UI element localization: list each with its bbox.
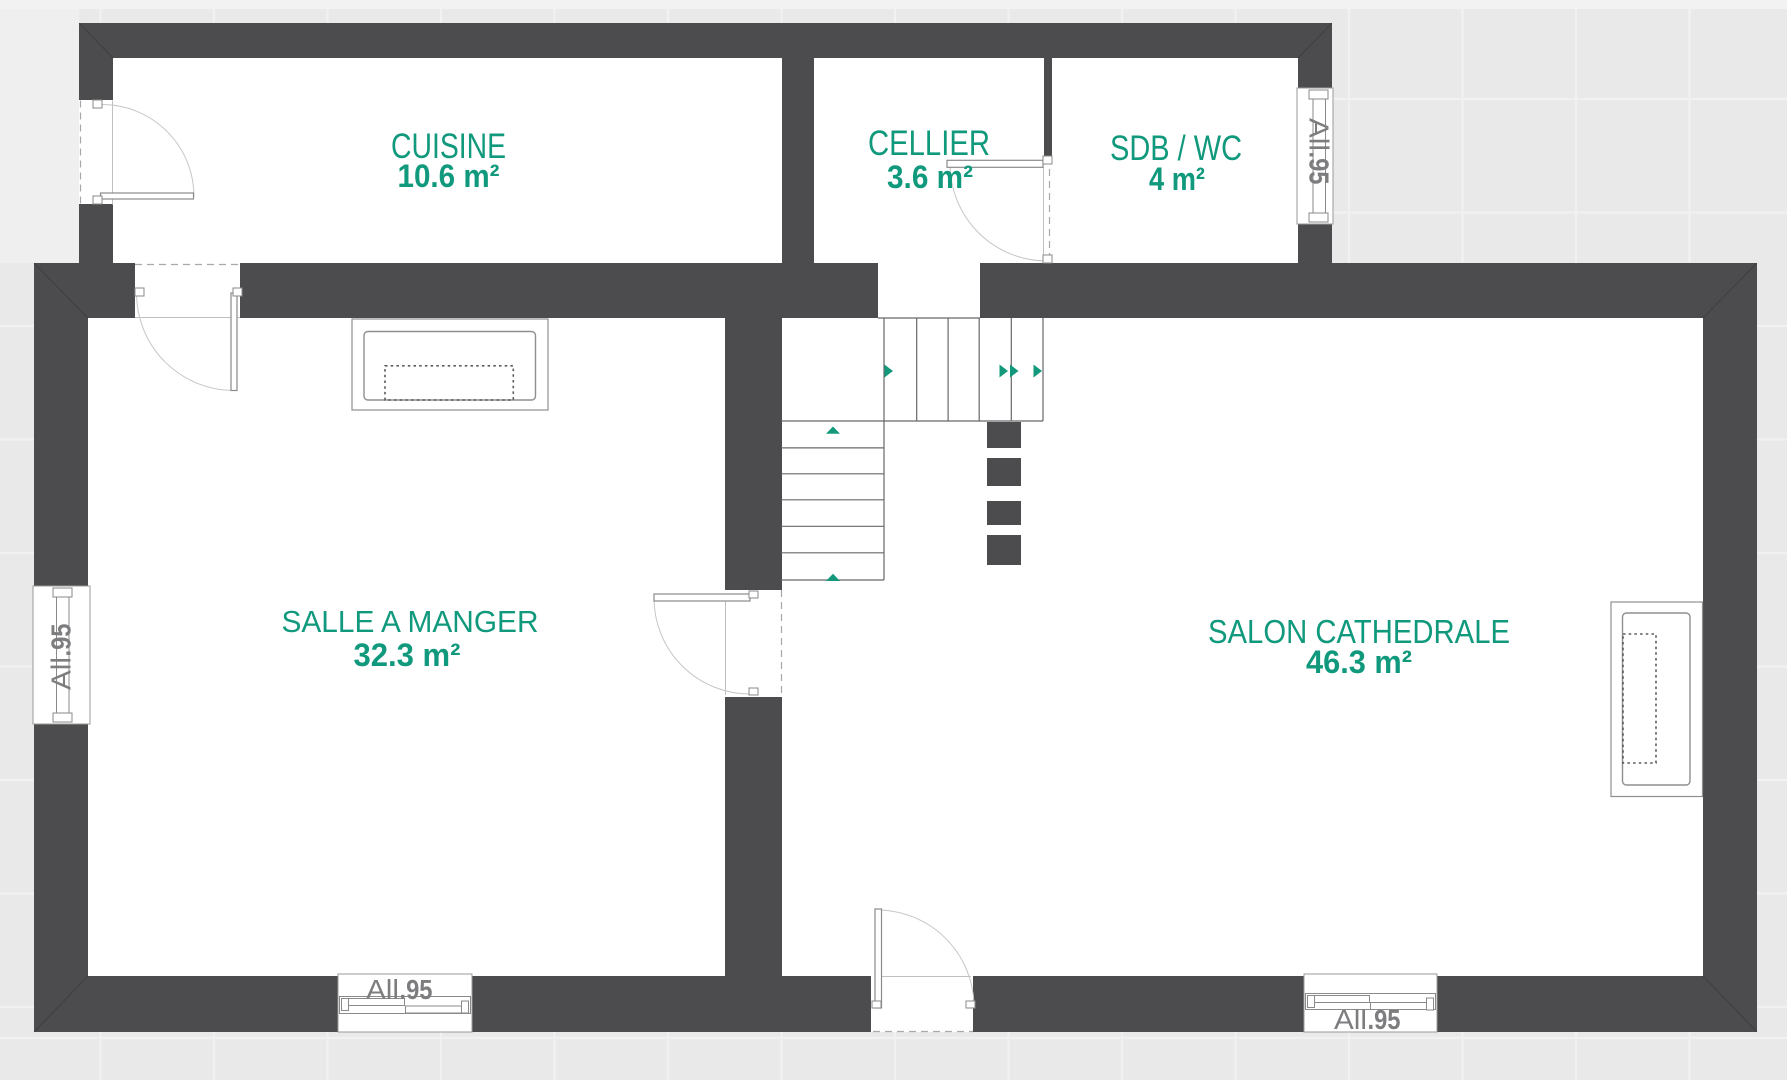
svg-text:All: All [46,657,77,690]
svg-text:4 m²: 4 m² [1149,161,1205,197]
svg-text:.95: .95 [1304,152,1335,185]
svg-text:All: All [1304,118,1335,151]
svg-text:SALLE A MANGER: SALLE A MANGER [282,604,539,639]
svg-text:10.6 m²: 10.6 m² [398,158,500,194]
svg-text:All: All [1334,1004,1367,1035]
svg-text:32.3 m²: 32.3 m² [354,637,461,673]
svg-text:3.6 m²: 3.6 m² [887,159,973,195]
svg-text:.95: .95 [1368,1004,1401,1035]
svg-text:.95: .95 [400,974,433,1005]
svg-text:CELLIER: CELLIER [868,124,990,163]
svg-text:.95: .95 [46,624,77,657]
svg-text:All: All [366,974,399,1005]
svg-text:46.3 m²: 46.3 m² [1306,644,1412,680]
